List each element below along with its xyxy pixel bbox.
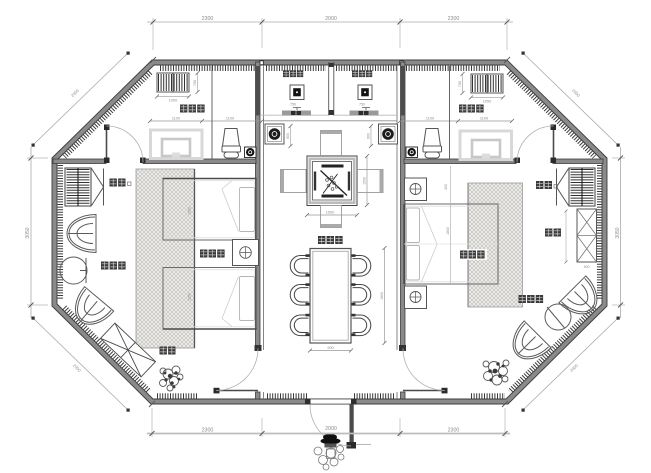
svg-text:3050: 3050 (25, 227, 31, 238)
svg-text:2000: 2000 (325, 16, 337, 22)
svg-text:1050: 1050 (483, 100, 491, 104)
svg-text:2300: 2300 (202, 428, 214, 434)
svg-text:1050: 1050 (169, 99, 177, 103)
svg-text:1100: 1100 (226, 117, 234, 121)
svg-text:750: 750 (290, 103, 296, 107)
svg-text:600: 600 (286, 133, 290, 139)
svg-text:1100: 1100 (480, 117, 488, 121)
svg-text:2300: 2300 (448, 428, 460, 434)
svg-text:750: 750 (359, 103, 365, 107)
svg-text:1100: 1100 (172, 117, 180, 121)
svg-text:1800: 1800 (446, 227, 450, 235)
svg-text:2000: 2000 (325, 426, 337, 432)
svg-text:700: 700 (458, 81, 462, 87)
svg-text:1350: 1350 (188, 207, 192, 215)
svg-text:1500: 1500 (363, 177, 367, 185)
svg-text:400: 400 (584, 265, 590, 269)
svg-text:1100: 1100 (426, 117, 434, 121)
svg-text:2300: 2300 (202, 16, 214, 22)
svg-text:1800: 1800 (380, 292, 384, 300)
svg-text:2900: 2900 (571, 88, 582, 99)
svg-text:400: 400 (444, 184, 448, 190)
svg-text:3050: 3050 (615, 227, 621, 238)
svg-text:1500: 1500 (326, 211, 334, 215)
svg-text:2300: 2300 (448, 16, 460, 22)
svg-text:2900: 2900 (70, 87, 81, 98)
svg-text:900: 900 (327, 346, 333, 350)
svg-text:700: 700 (193, 80, 197, 86)
svg-text:1350: 1350 (188, 293, 192, 301)
svg-text:600: 600 (367, 133, 371, 139)
